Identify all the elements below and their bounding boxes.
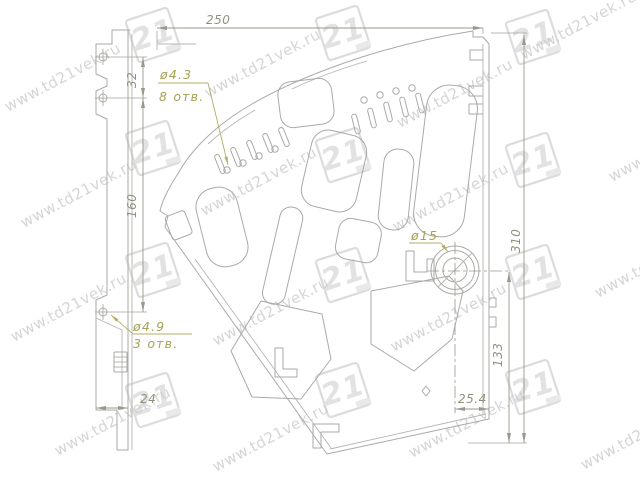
side-view-latch xyxy=(114,352,127,372)
small-hole xyxy=(377,92,383,98)
dim-25-4-label: 25.4 xyxy=(458,392,487,406)
annotation-center-hole: ø15 xyxy=(409,228,448,252)
side-holes-count: 3 отв. xyxy=(133,336,178,351)
hook-cutout xyxy=(406,251,434,281)
diamond-hole xyxy=(422,386,430,396)
side-view-bend-line xyxy=(96,318,122,410)
dim-310-label: 310 xyxy=(509,229,523,253)
dim-133-label: 133 xyxy=(491,343,505,367)
plate-holes-diameter: ø4.3 xyxy=(159,67,192,82)
cutout xyxy=(276,77,335,129)
small-hole xyxy=(361,97,367,103)
small-hole xyxy=(393,88,399,94)
technical-drawing-canvas: www.td21vek.ru 21 xyxy=(0,0,640,480)
hook-cutout xyxy=(313,424,339,448)
slanted-cutout xyxy=(164,210,193,241)
side-holes-diameter: ø4.9 xyxy=(132,319,165,334)
side-hole-2 xyxy=(95,90,147,106)
center-hole-diameter: ø15 xyxy=(410,228,438,243)
technical-drawing-page: www.td21vek.ru 21 xyxy=(0,0,640,480)
small-hole xyxy=(409,85,415,91)
plate-holes-count: 8 отв. xyxy=(159,89,204,104)
dim-160-label: 160 xyxy=(125,194,139,218)
side-hole-3 xyxy=(95,304,147,320)
annotation-side-holes: ø4.9 3 отв. xyxy=(111,315,192,351)
dim-32-label: 32 xyxy=(125,72,139,88)
dim-250-label: 250 xyxy=(206,13,230,27)
hook-cutout xyxy=(275,348,297,377)
dim-24-label: 24 xyxy=(140,392,156,406)
